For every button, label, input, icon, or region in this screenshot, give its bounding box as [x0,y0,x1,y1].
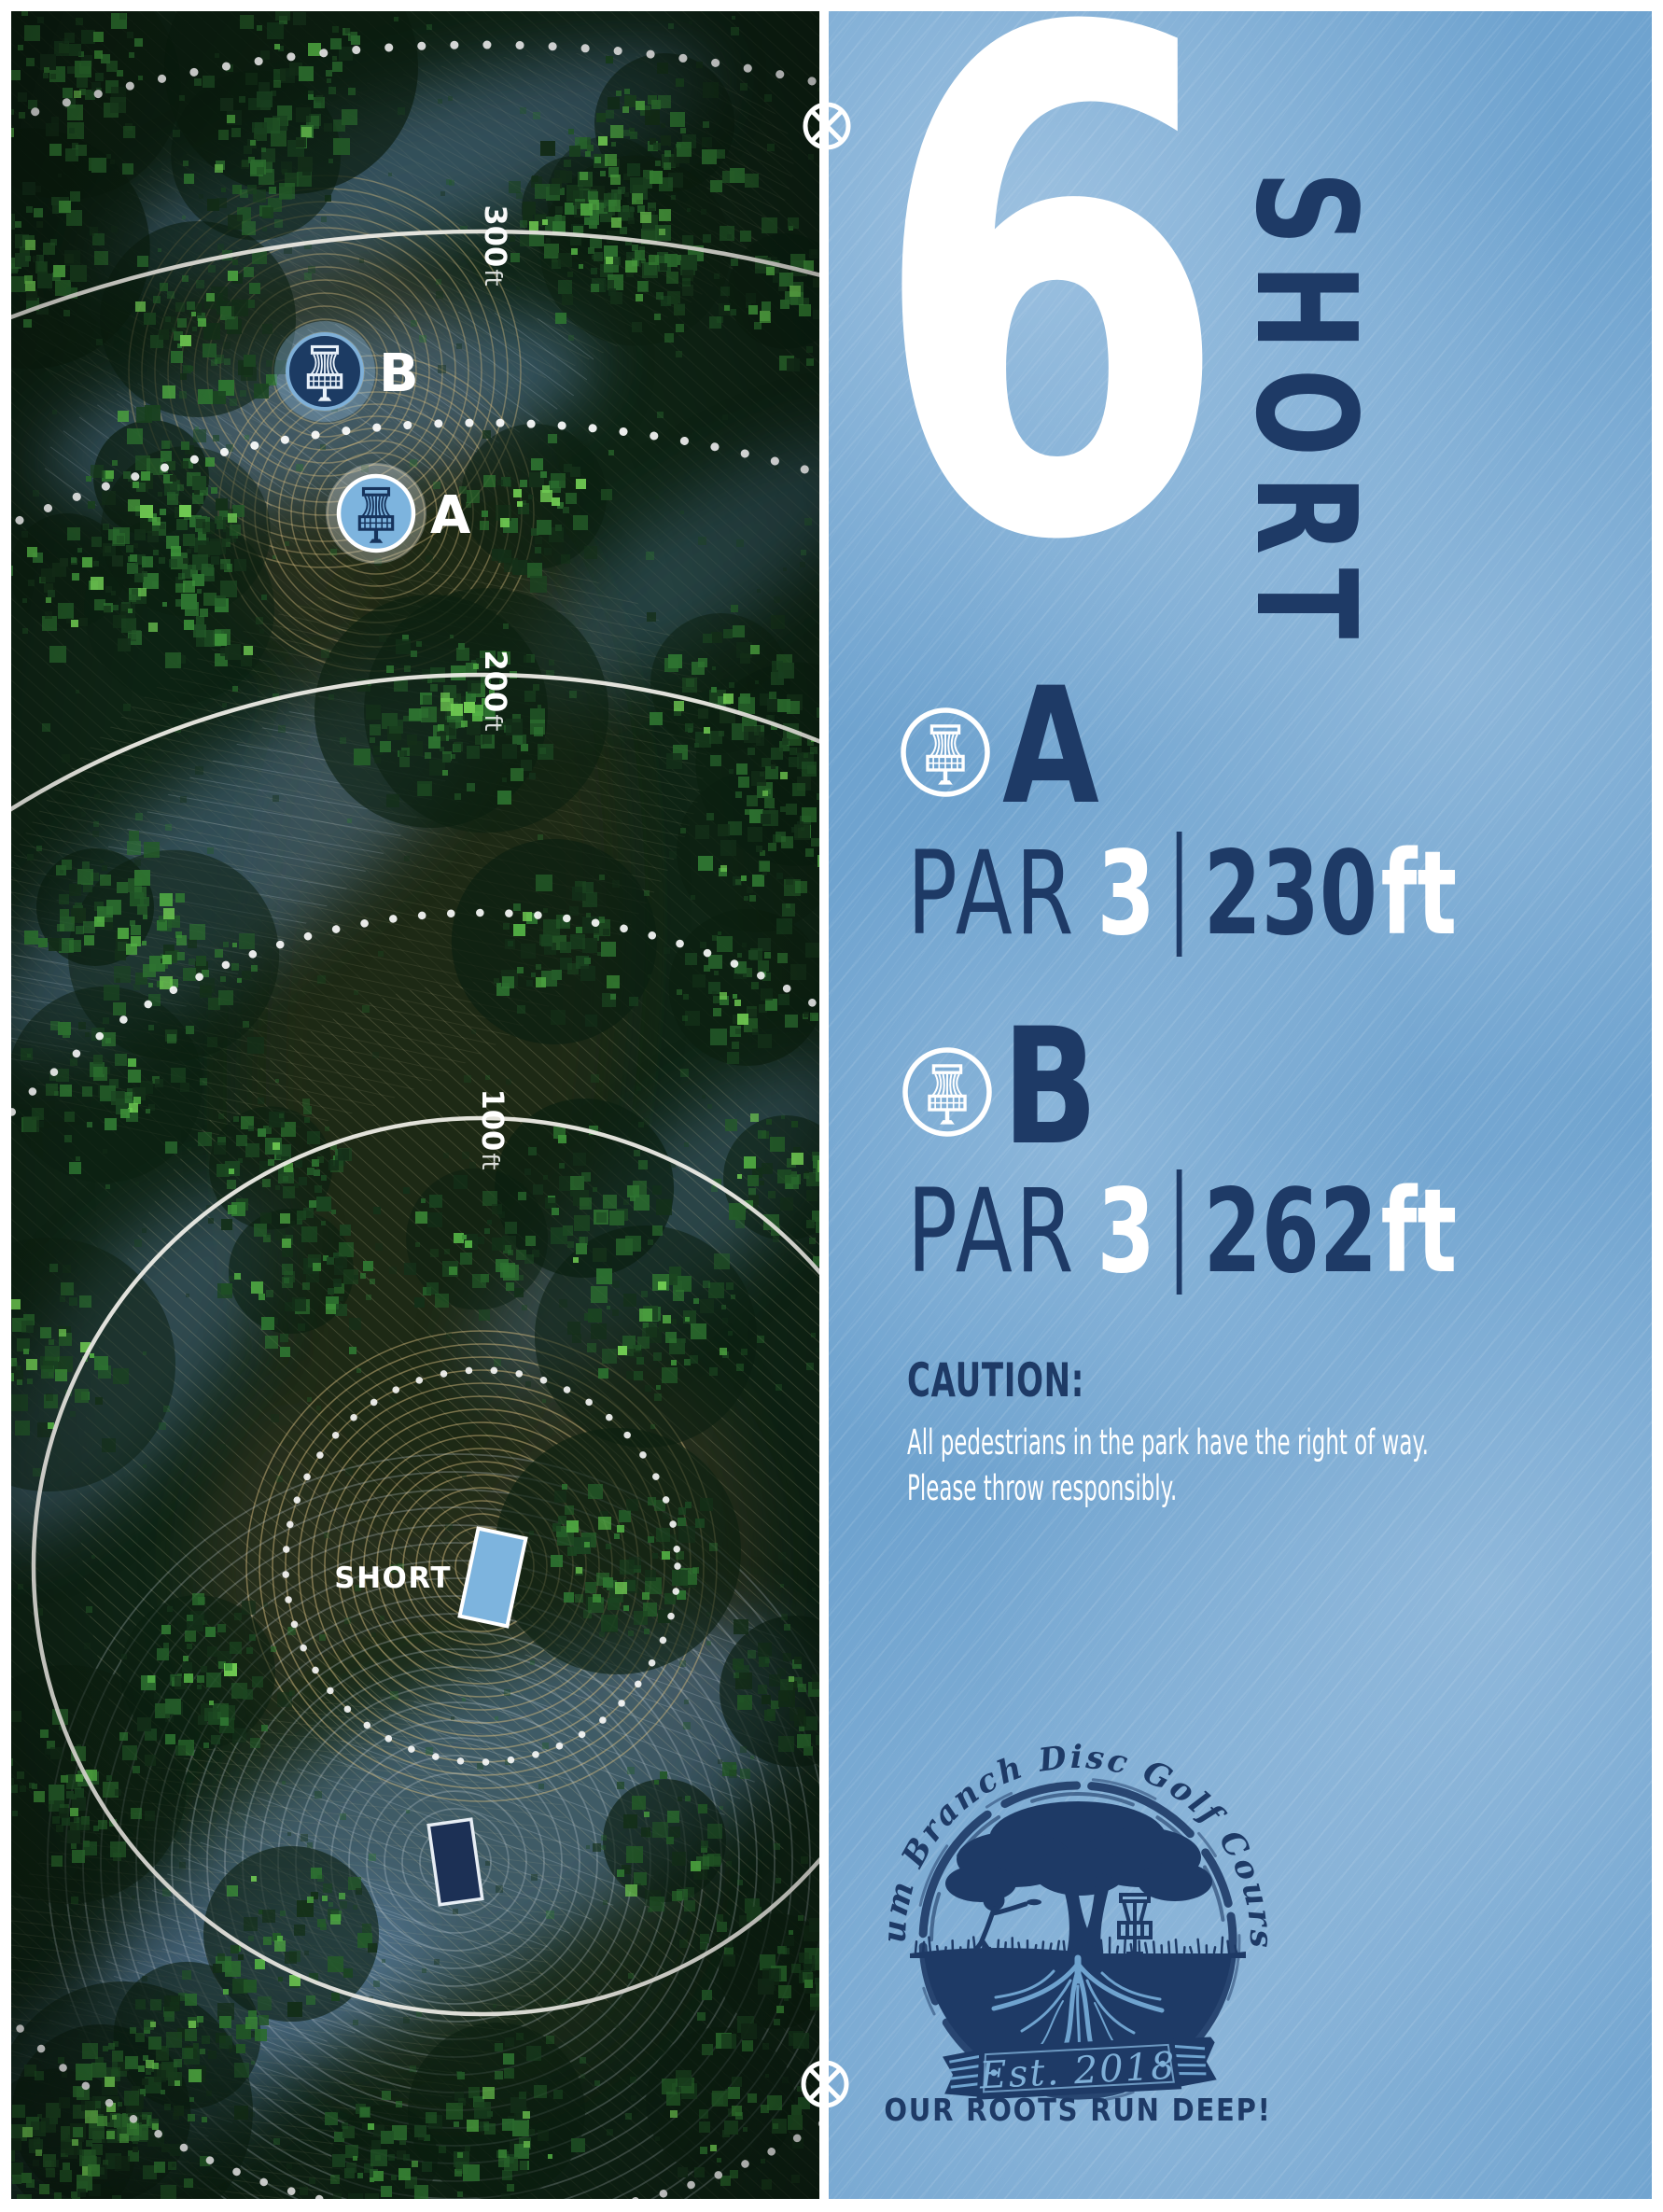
logo-tagline: OUR ROOTS RUN DEEP! [884,2093,1271,2128]
par-row-a: PAR 3 230 ft [907,827,1457,961]
par-distance-divider [1177,1169,1182,1295]
distance-value: 262 [1204,1165,1377,1299]
info-panel: 6 SHORT A PAR 3 230 ft B PAR 3 262 ft [829,11,1652,2199]
basket-icon-b [901,1045,994,1139]
course-map: 300ft 200ft 100ft SHORT B [11,11,819,2199]
basket-icon-a [899,706,992,799]
caution-line: Please throw responsibly. [907,1466,1429,1512]
distance-unit: ft [1381,827,1458,961]
map-vignette [11,11,819,2199]
hole-number: 6 [870,0,1230,635]
position-letter-b: B [1002,1007,1097,1168]
par-word: PAR [907,827,1077,961]
par-value: 3 [1097,827,1155,961]
course-logo: Gum Branch Disc Golf Course [854,1736,1302,2137]
caution-line: All pedestrians in the park have the rig… [907,1421,1429,1466]
par-word: PAR [907,1165,1077,1299]
par-distance-divider [1177,832,1182,957]
distance-unit: ft [1381,1165,1458,1299]
caution-text: All pedestrians in the park have the rig… [907,1421,1429,1512]
registration-mark-top [797,96,857,156]
distance-value: 230 [1204,827,1377,961]
caution-heading: CAUTION: [907,1357,1479,1404]
position-letter-a: A [1002,666,1099,827]
caution-block: CAUTION: All pedestrians in the park hav… [907,1357,1663,1512]
hole-sign-page: 300ft 200ft 100ft SHORT B [0,0,1663,2212]
par-row-b: PAR 3 262 ft [907,1165,1457,1299]
layout-name-vertical: SHORT [1237,171,1375,657]
par-value: 3 [1097,1165,1155,1299]
registration-mark-bottom [795,2054,855,2114]
